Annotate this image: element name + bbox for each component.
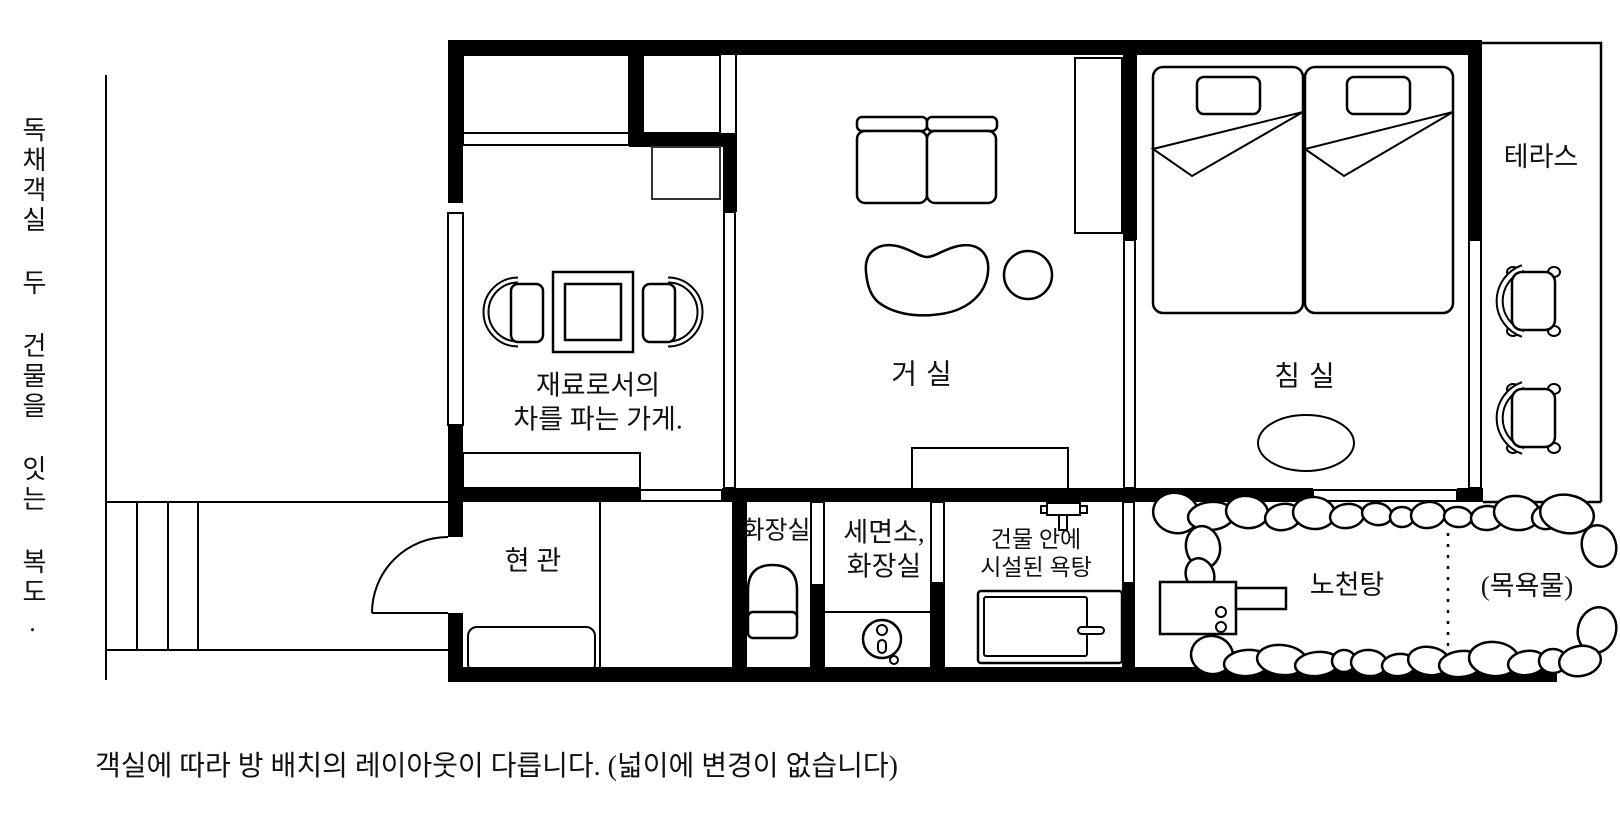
pillow bbox=[1347, 77, 1410, 114]
terrace-chair-2 bbox=[1500, 384, 1560, 453]
twin-bed-2 bbox=[1305, 67, 1453, 313]
shelf-band bbox=[463, 133, 629, 145]
label-bedroom: 침 실 bbox=[1274, 360, 1336, 395]
floor-plan-drawing bbox=[0, 0, 1620, 840]
label-bath-water: (목욕물) bbox=[1481, 570, 1574, 604]
sofa-icon bbox=[857, 117, 997, 203]
closet-1 bbox=[463, 55, 629, 133]
sliding-door-tea-living bbox=[724, 212, 735, 488]
closet-3 bbox=[652, 147, 720, 199]
door-bath-outside bbox=[1123, 502, 1134, 583]
sliding-door-bedroom-terrace bbox=[1469, 240, 1481, 488]
door-midwall-left bbox=[640, 490, 722, 501]
toilet-icon bbox=[748, 565, 797, 638]
door-toilet bbox=[811, 502, 824, 585]
terrace-chair-1 bbox=[1500, 267, 1560, 336]
twin-bed-1 bbox=[1153, 67, 1303, 313]
door-washroom-bath bbox=[931, 502, 944, 583]
window-left-wall bbox=[448, 213, 463, 425]
label-toilet: 화장실 bbox=[741, 515, 810, 546]
label-terrace: 테라스 bbox=[1504, 141, 1579, 175]
stool bbox=[1004, 251, 1052, 299]
bottom-caption: 객실에 따라 방 배치의 레이아웃이 다릅니다. (넓이에 변경이 없습니다) bbox=[95, 744, 898, 784]
label-entrance: 현 관 bbox=[505, 545, 561, 579]
label-tea-shop: 재료로서의 차를 파는 가게. bbox=[513, 369, 682, 437]
tea-chair-left bbox=[486, 280, 543, 344]
bedroom-rug-oval bbox=[1258, 415, 1354, 471]
shoe-cabinet bbox=[468, 627, 595, 673]
side-note-vertical: 독채객실 두 건물을 잇는 복도. bbox=[14, 116, 51, 641]
entrance-door-swing-icon bbox=[372, 537, 448, 613]
tea-table bbox=[553, 272, 633, 352]
door-bedroom-bath bbox=[1313, 490, 1457, 501]
bathtub-icon bbox=[978, 591, 1122, 663]
sliding-door-living-bedroom bbox=[1124, 240, 1135, 488]
connecting-corridor bbox=[106, 75, 448, 680]
tea-chair-right bbox=[643, 280, 700, 344]
label-washroom: 세면소, 화장실 bbox=[843, 516, 924, 584]
tv-board bbox=[912, 448, 1068, 489]
floor-plan: 독채객실 두 건물을 잇는 복도. 재료로서의 차를 파는 가게. 거 실 침 … bbox=[0, 0, 1620, 840]
living-counter bbox=[1075, 58, 1122, 233]
open-air-bath-pump bbox=[1160, 582, 1286, 634]
pillow bbox=[1197, 77, 1260, 114]
washbasin-icon bbox=[863, 620, 901, 664]
tea-room-low-cabinet bbox=[463, 453, 640, 488]
label-indoor-bath: 건물 안에 시설된 욕탕 bbox=[980, 526, 1092, 582]
label-open-air-bath: 노천탕 bbox=[1310, 569, 1385, 603]
kidney-coffee-table bbox=[866, 245, 988, 315]
label-living-room: 거 실 bbox=[891, 358, 953, 393]
closet-2 bbox=[643, 55, 720, 133]
